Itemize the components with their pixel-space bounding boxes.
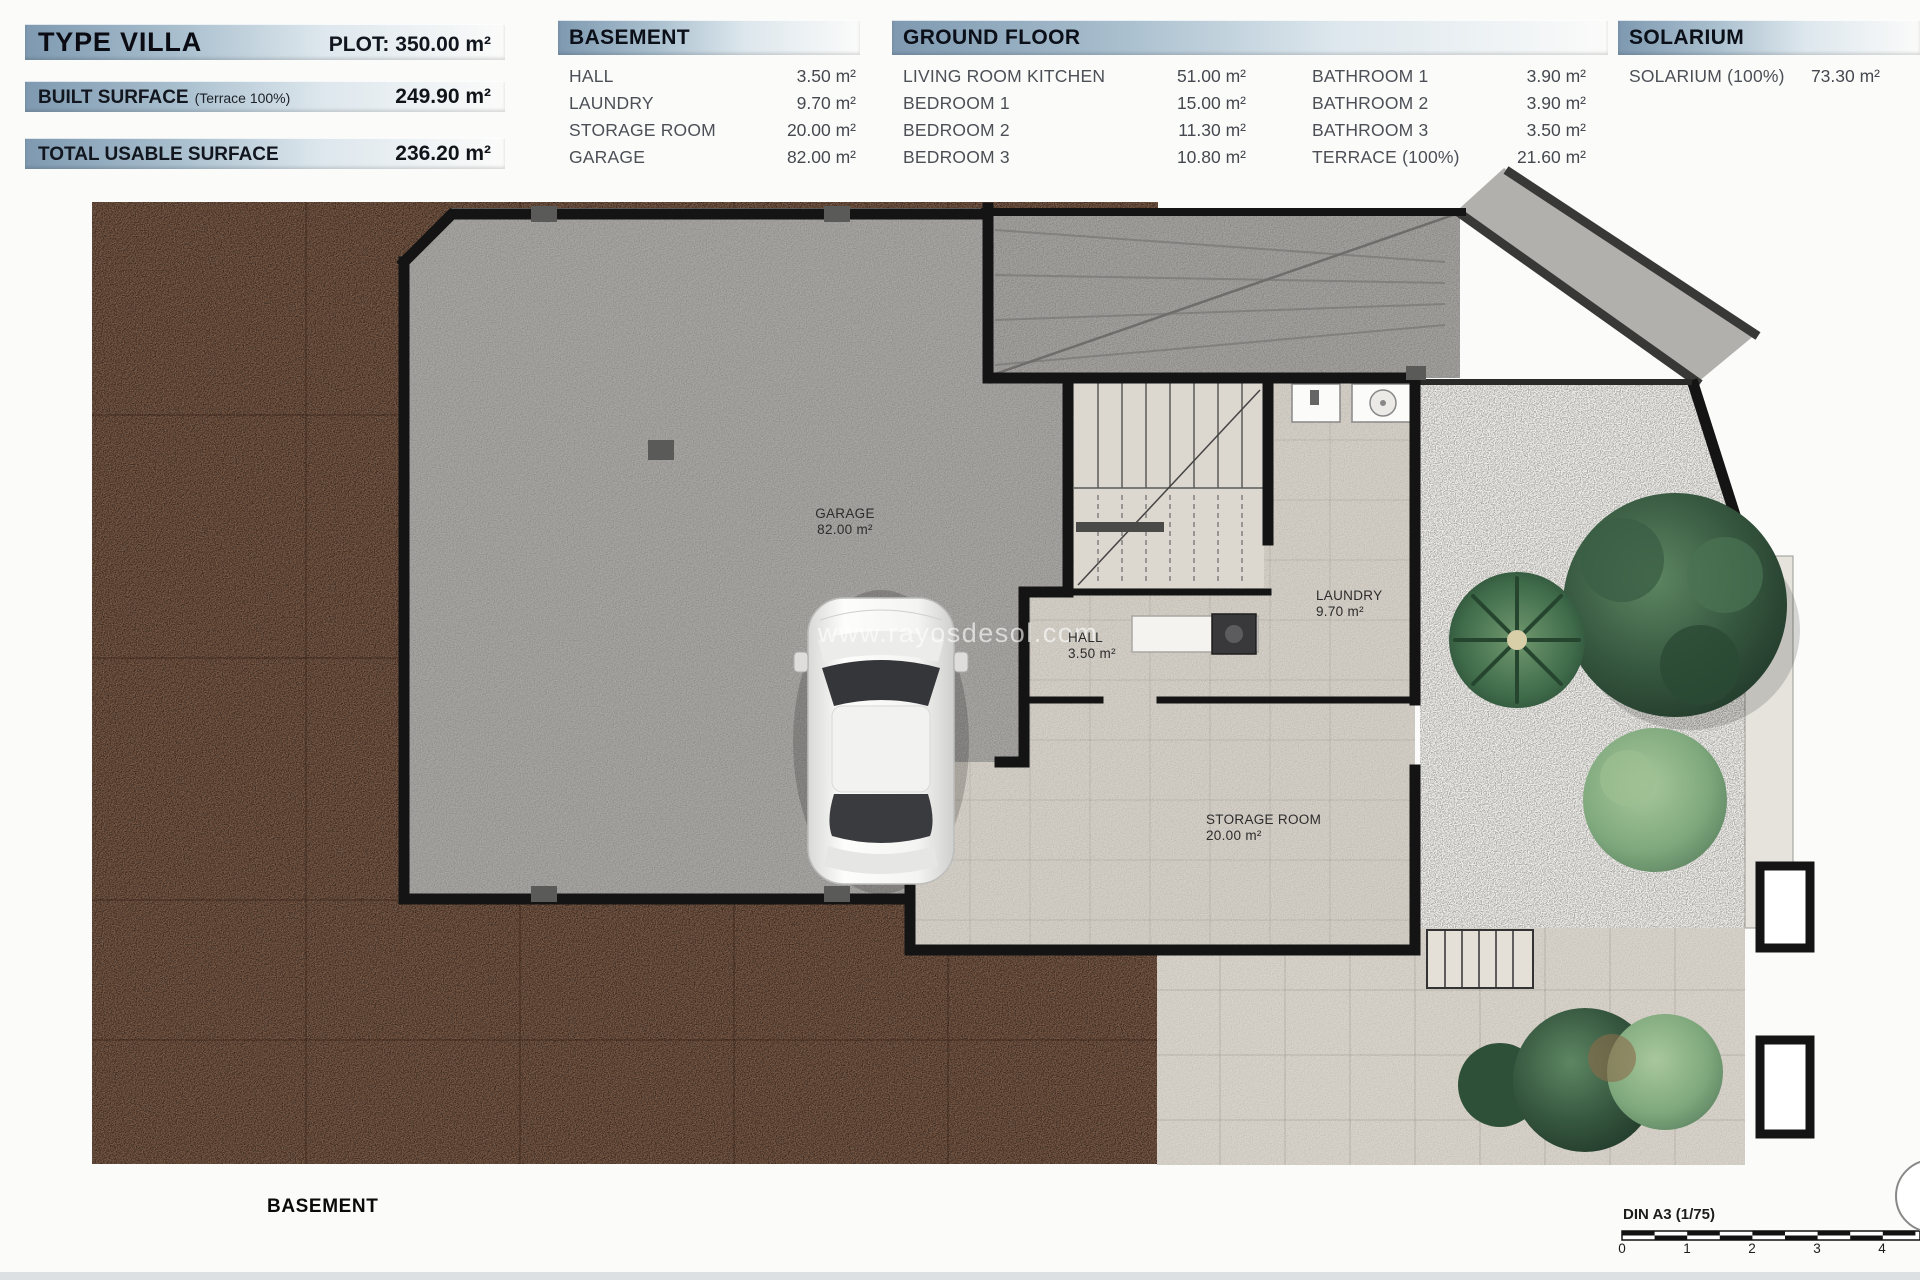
bottom-edge-strip (0, 1272, 1920, 1280)
ground-floor-col1: LIVING ROOM KITCHEN51.00 m² BEDROOM 115.… (892, 63, 1250, 171)
scale-ruler (1622, 1160, 1920, 1240)
planters (1760, 866, 1810, 1134)
table-row: BATHROOM 13.90 m² (1312, 63, 1590, 90)
type-villa-bar: TYPE VILLA PLOT: 350.00 m² (25, 24, 505, 60)
palm-tree (1449, 572, 1585, 708)
table-row: BEDROOM 211.30 m² (892, 117, 1250, 144)
table-row: GARAGE82.00 m² (558, 144, 860, 171)
table-row: STORAGE ROOM20.00 m² (558, 117, 860, 144)
room-label-garage: GARAGE 82.00 m² (790, 506, 900, 538)
total-usable-bar: TOTAL USABLE SURFACE 236.20 m² (25, 138, 505, 169)
table-row: TERRACE (100%)21.60 m² (1312, 144, 1590, 171)
scale-tick: 2 (1742, 1241, 1762, 1256)
basement-table: BASEMENT HALL3.50 m² LAUNDRY9.70 m² STOR… (558, 20, 860, 171)
table-row: SOLARIUM (100%)73.30 m² (1618, 63, 1920, 90)
ground-floor-table-title: GROUND FLOOR (892, 26, 1080, 50)
terrace-stairs (1427, 930, 1533, 988)
solarium-table: SOLARIUM SOLARIUM (100%)73.30 m² (1618, 20, 1920, 90)
total-usable-value: 236.20 m² (395, 142, 505, 166)
table-row: HALL3.50 m² (558, 63, 860, 90)
plot-area: PLOT: 350.00 m² (329, 33, 505, 57)
type-title: TYPE VILLA (38, 27, 202, 58)
scale-tick: 0 (1612, 1241, 1632, 1256)
built-surface-value: 249.90 m² (395, 85, 505, 109)
table-row: BATHROOM 33.50 m² (1312, 117, 1590, 144)
table-row: BEDROOM 310.80 m² (892, 144, 1250, 171)
scale-tick: 1 (1677, 1241, 1697, 1256)
total-usable-label: TOTAL USABLE SURFACE (38, 144, 279, 166)
scale-label: DIN A3 (1/75) (1623, 1206, 1715, 1223)
scale-tick: 3 (1807, 1241, 1827, 1256)
built-surface-bar: BUILT SURFACE (Terrace 100%) 249.90 m² (25, 81, 505, 112)
table-row: BEDROOM 115.00 m² (892, 90, 1250, 117)
solarium-table-title: SOLARIUM (1618, 26, 1744, 50)
ground-floor-table: GROUND FLOOR LIVING ROOM KITCHEN51.00 m²… (892, 20, 1608, 171)
scale-tick: 4 (1872, 1241, 1892, 1256)
built-surface-note: (Terrace 100%) (195, 90, 291, 106)
built-surface-label: BUILT SURFACE (38, 87, 189, 109)
floor-plan-sheet: TYPE VILLA PLOT: 350.00 m² BUILT SURFACE… (0, 0, 1920, 1280)
table-row: LIVING ROOM KITCHEN51.00 m² (892, 63, 1250, 90)
staircase (1074, 383, 1264, 588)
room-label-hall: HALL 3.50 m² (1068, 630, 1116, 662)
room-label-laundry: LAUNDRY 9.70 m² (1316, 588, 1382, 620)
ground-floor-col2: BATHROOM 13.90 m² BATHROOM 23.90 m² BATH… (1312, 63, 1590, 171)
table-row: BATHROOM 23.90 m² (1312, 90, 1590, 117)
room-label-storage: STORAGE ROOM 20.00 m² (1206, 812, 1321, 844)
floor-caption: BASEMENT (267, 1196, 378, 1218)
basement-table-title: BASEMENT (558, 26, 690, 50)
table-row: LAUNDRY9.70 m² (558, 90, 860, 117)
